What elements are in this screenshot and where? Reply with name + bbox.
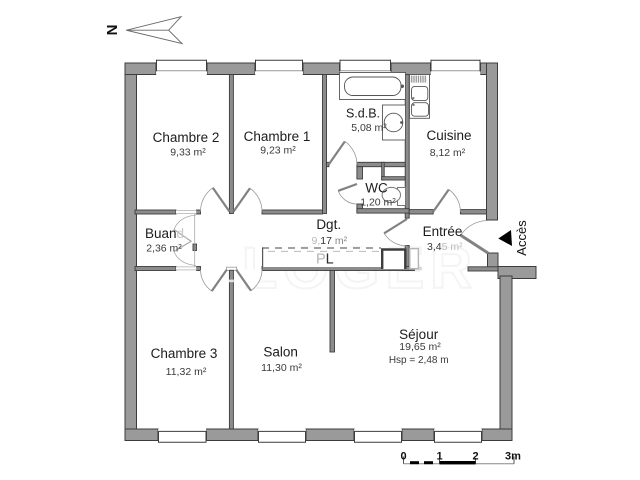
svg-text:WC: WC (365, 181, 388, 196)
svg-text:Entrée: Entrée (423, 224, 463, 239)
svg-text:3,45 m²: 3,45 m² (427, 241, 463, 253)
svg-text:1: 1 (436, 451, 442, 463)
svg-text:9,33 m²: 9,33 m² (170, 147, 206, 159)
svg-text:Hsp = 2,48 m: Hsp = 2,48 m (389, 355, 449, 366)
svg-text:9,23 m²: 9,23 m² (260, 145, 296, 157)
svg-text:Dgt.: Dgt. (316, 217, 341, 232)
svg-text:Buand.: Buand. (145, 226, 188, 241)
svg-text:S.d.B.: S.d.B. (346, 107, 380, 121)
svg-text:Chambre 3: Chambre 3 (151, 346, 218, 361)
svg-text:N: N (104, 25, 121, 36)
svg-text:PL: PL (316, 252, 334, 268)
svg-text:19,65 m²: 19,65 m² (399, 341, 441, 353)
svg-text:9,17 m²: 9,17 m² (312, 235, 348, 247)
svg-text:2: 2 (472, 451, 478, 463)
svg-text:Cuisine: Cuisine (426, 128, 471, 143)
svg-text:Séjour: Séjour (399, 327, 439, 342)
svg-text:11,30 m²: 11,30 m² (261, 362, 302, 374)
svg-text:Chambre 1: Chambre 1 (244, 129, 311, 144)
svg-text:0: 0 (400, 451, 406, 463)
svg-text:3m: 3m (505, 451, 521, 463)
svg-text:Salon: Salon (263, 345, 298, 360)
svg-text:Accès: Accès (514, 220, 529, 256)
svg-text:11,32 m²: 11,32 m² (166, 366, 207, 378)
svg-text:8,12 m²: 8,12 m² (430, 147, 466, 159)
svg-text:5,08 m²: 5,08 m² (351, 122, 387, 134)
svg-text:1,20 m²: 1,20 m² (360, 197, 396, 209)
svg-text:Chambre 2: Chambre 2 (153, 130, 220, 145)
svg-text:2,36 m²: 2,36 m² (146, 243, 182, 255)
